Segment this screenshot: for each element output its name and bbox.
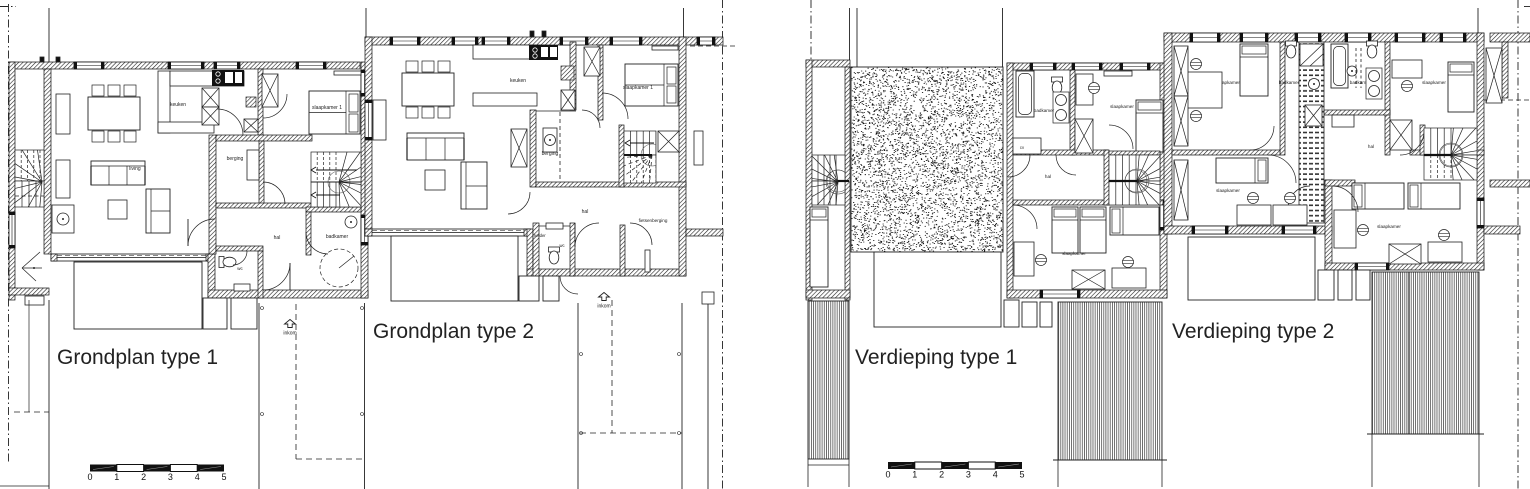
svg-text:inkom: inkom	[283, 331, 296, 337]
svg-text:0: 0	[885, 470, 890, 480]
svg-text:2: 2	[141, 472, 146, 482]
svg-text:slaapkamer: slaapkamer	[1377, 224, 1401, 229]
svg-text:wc: wc	[237, 266, 243, 271]
svg-text:slaapkamer: slaapkamer	[1110, 104, 1134, 109]
svg-text:hal: hal	[1368, 144, 1374, 149]
svg-text:4: 4	[195, 472, 200, 482]
svg-text:badkamer: badkamer	[326, 234, 349, 240]
svg-text:5: 5	[221, 472, 226, 482]
svg-text:hal: hal	[1045, 174, 1051, 179]
svg-text:slaapkamer: slaapkamer	[1216, 188, 1240, 193]
svg-text:slaapkamer: slaapkamer	[1422, 80, 1446, 85]
svg-text:hal: hal	[274, 235, 281, 241]
svg-text:Verdieping type 2: Verdieping type 2	[1172, 320, 1334, 343]
svg-text:keuken: keuken	[170, 102, 186, 108]
svg-text:berging: berging	[227, 156, 244, 162]
svg-text:1: 1	[114, 472, 119, 482]
svg-text:3: 3	[966, 470, 971, 480]
svg-text:Grondplan type 1: Grondplan type 1	[57, 346, 218, 369]
svg-text:Verdieping type 1: Verdieping type 1	[855, 346, 1017, 369]
svg-text:badkamer: badkamer	[1279, 80, 1300, 85]
svg-text:1: 1	[912, 470, 917, 480]
svg-text:inkom: inkom	[597, 304, 610, 310]
svg-text:badkamer: badkamer	[1034, 108, 1055, 113]
svg-text:hal: hal	[582, 209, 589, 215]
svg-text:2: 2	[939, 470, 944, 480]
svg-text:slaapkamer 1: slaapkamer 1	[623, 85, 653, 91]
svg-text:5: 5	[1019, 470, 1024, 480]
svg-text:living: living	[129, 166, 141, 172]
svg-text:fietsenberging: fietsenberging	[639, 218, 668, 223]
svg-text:kelder: kelder	[534, 233, 546, 238]
svg-text:slaapkamer: slaapkamer	[1062, 251, 1086, 256]
svg-text:wc: wc	[559, 243, 564, 248]
svg-text:4: 4	[993, 470, 998, 480]
svg-text:3: 3	[168, 472, 173, 482]
svg-text:Grondplan type 2: Grondplan type 2	[373, 320, 534, 343]
svg-text:slaapkamer 1: slaapkamer 1	[312, 105, 342, 111]
svg-text:keuken: keuken	[510, 78, 526, 84]
svg-text:0: 0	[87, 472, 92, 482]
